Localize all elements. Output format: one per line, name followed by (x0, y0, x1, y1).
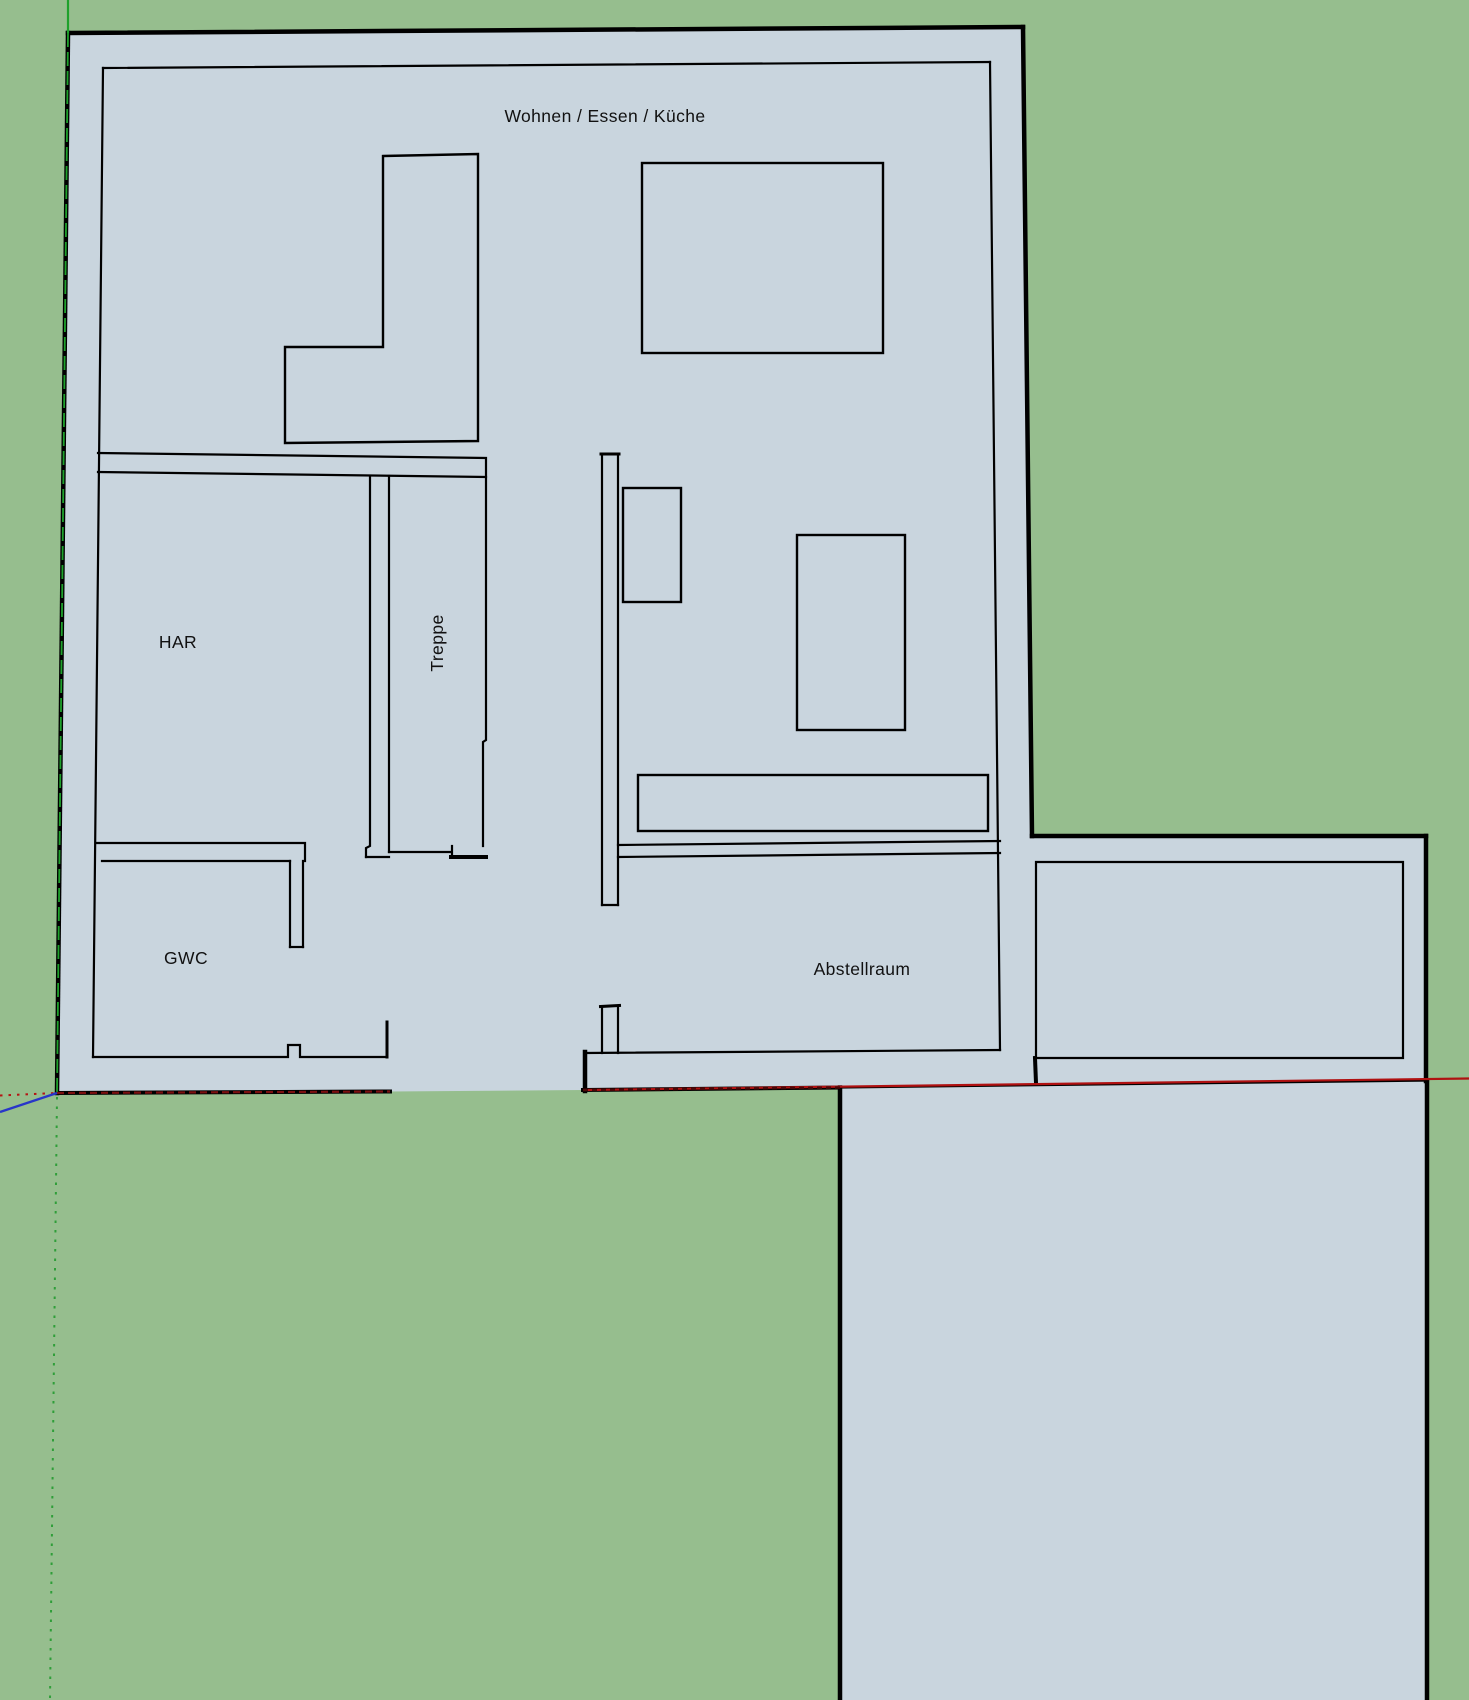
label-har[interactable]: HAR (159, 632, 197, 652)
label-abstellraum[interactable]: Abstellraum (814, 959, 911, 979)
model-viewport[interactable]: Wohnen / Essen / Küche HAR Treppe GWC Ab… (0, 0, 1469, 1700)
floorplan-canvas[interactable]: Wohnen / Essen / Küche HAR Treppe GWC Ab… (0, 0, 1469, 1700)
wing-inner-south-jamb[interactable] (1035, 1058, 1036, 1083)
label-living-room[interactable]: Wohnen / Essen / Küche (504, 106, 705, 126)
south-slab-face[interactable] (840, 1081, 1428, 1700)
label-treppe[interactable]: Treppe (427, 614, 447, 671)
entry-jamb-cap[interactable] (601, 1006, 620, 1007)
label-gwc[interactable]: GWC (164, 948, 208, 968)
